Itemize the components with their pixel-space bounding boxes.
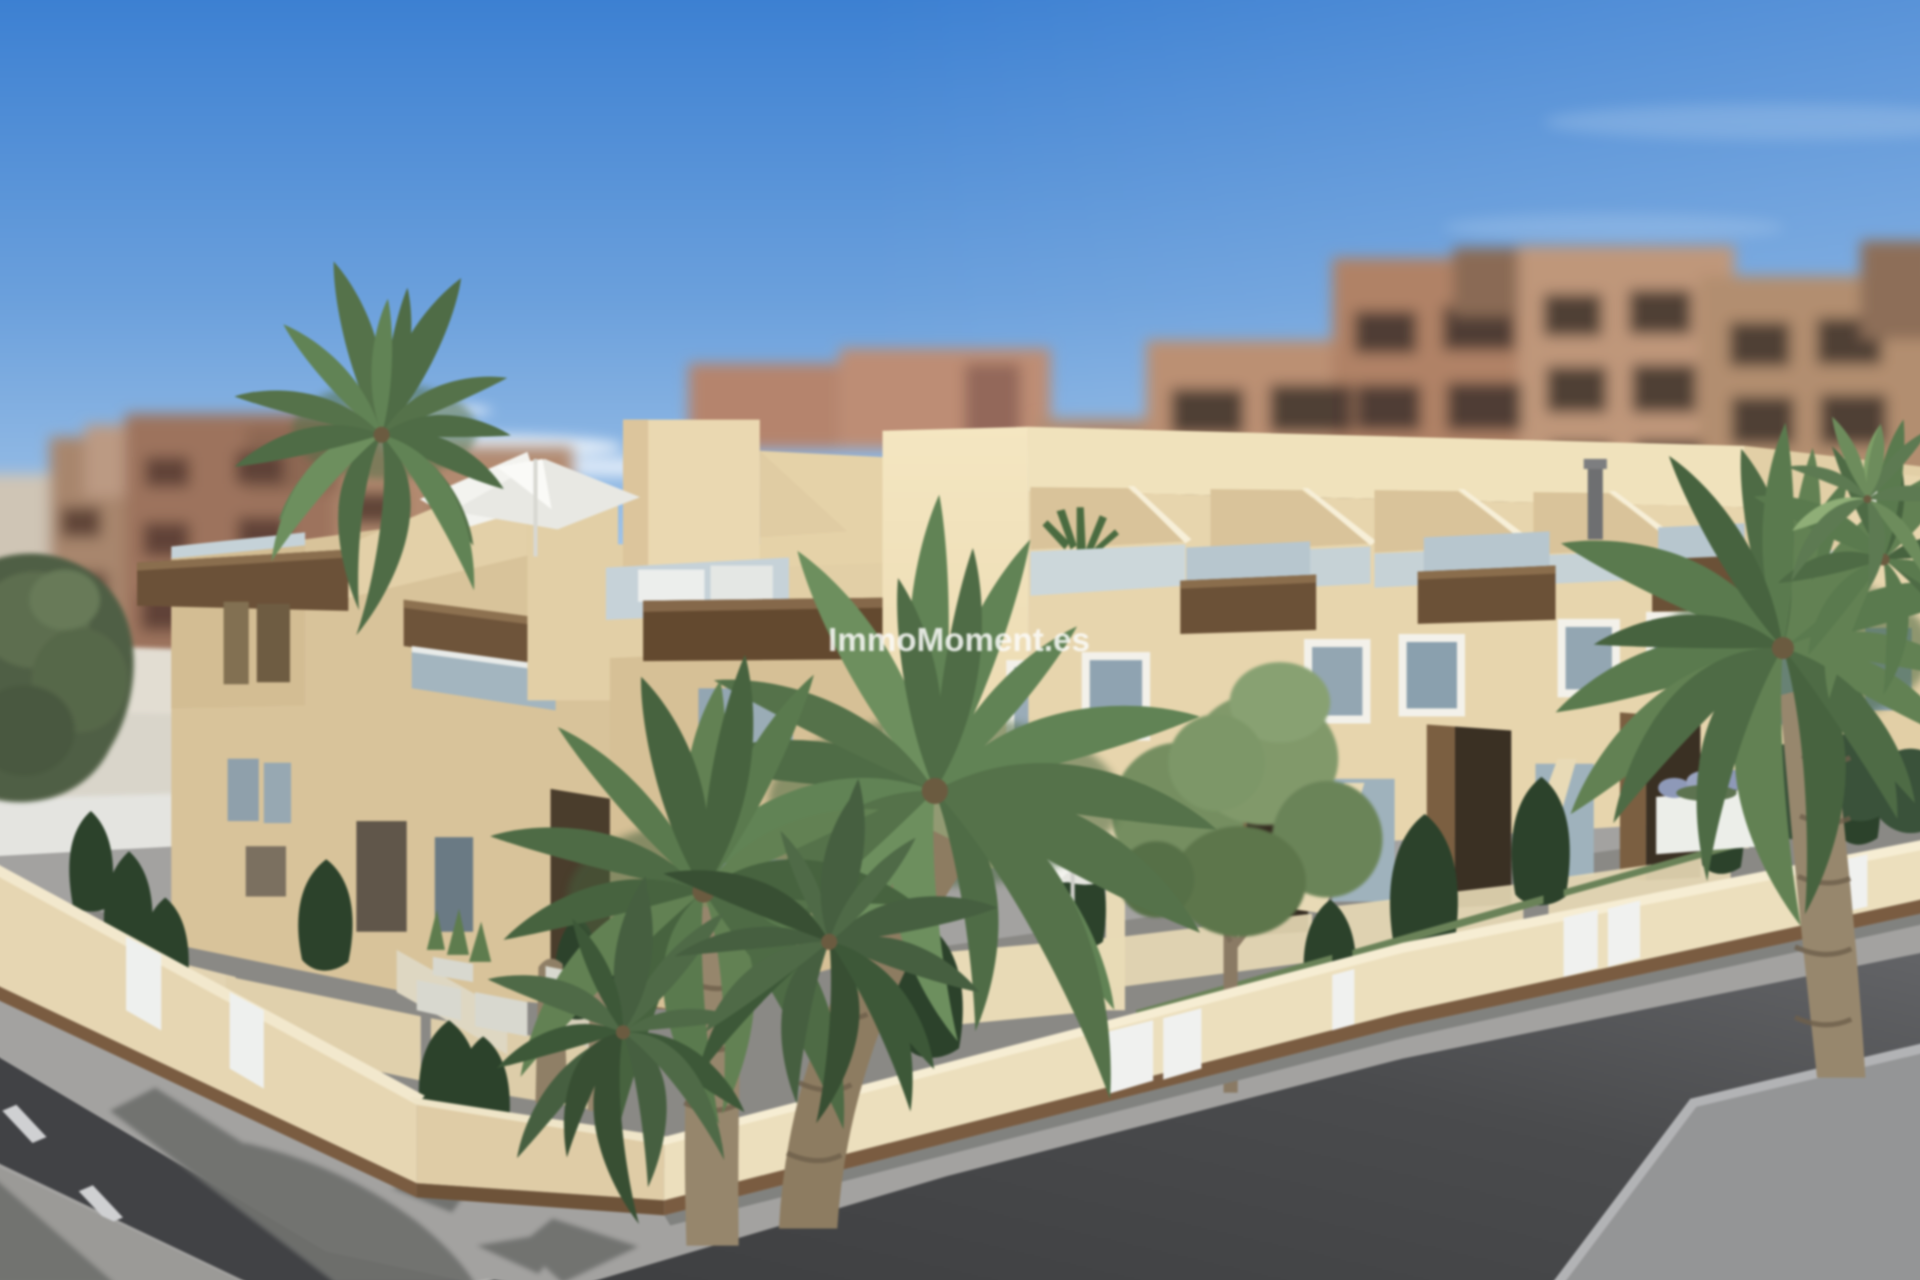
svg-text:ImmoMoment.es: ImmoMoment.es	[828, 622, 1090, 659]
